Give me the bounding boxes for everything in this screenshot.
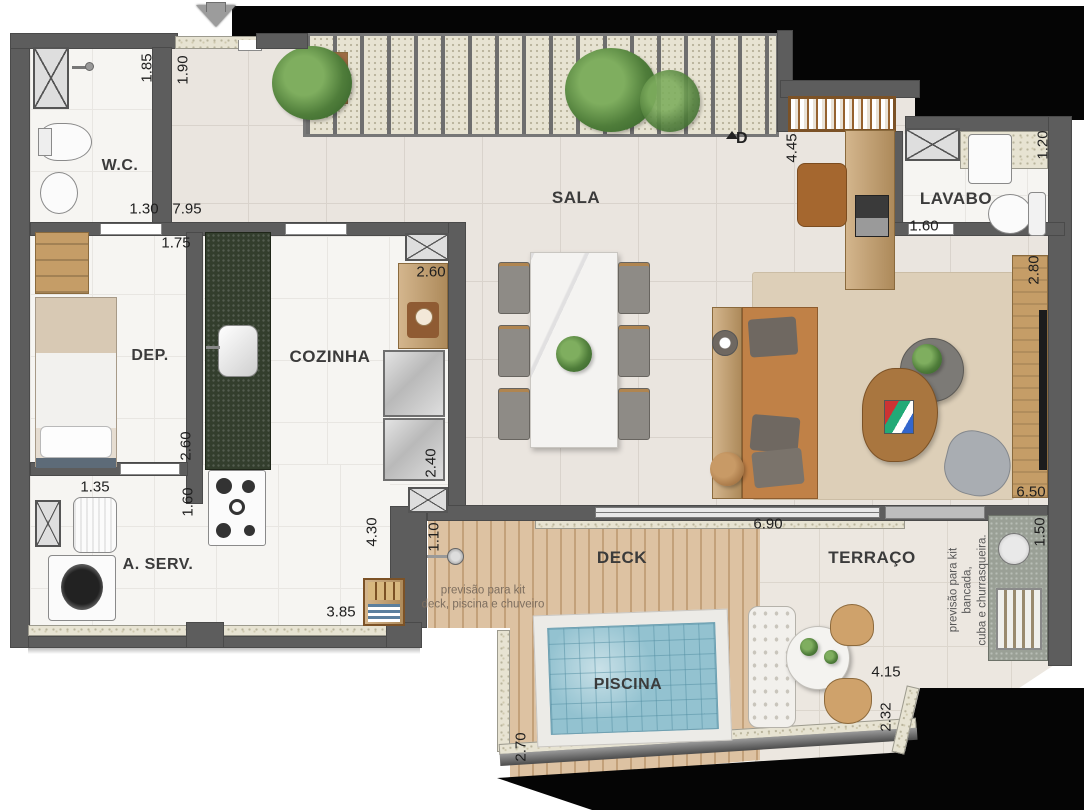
wall-service-bottom xyxy=(28,636,420,648)
shaft-wc xyxy=(33,47,69,109)
deck-shower-head xyxy=(447,548,464,565)
shaft-kitchen-top xyxy=(405,233,449,261)
laptop xyxy=(855,195,889,237)
mask-top-right-1 xyxy=(780,36,1084,84)
terraco-table-plant-1 xyxy=(800,638,818,656)
desk-chair xyxy=(797,163,847,227)
sofa xyxy=(742,307,818,499)
lavabo-door xyxy=(908,224,954,235)
wall-kitchen-right xyxy=(448,222,466,506)
stove xyxy=(208,470,266,546)
sala-window xyxy=(595,507,880,518)
washing-machine xyxy=(48,555,116,621)
dining-chair-3 xyxy=(498,388,530,440)
terrace-slider xyxy=(885,506,985,519)
wall-wc-right xyxy=(152,47,172,224)
side-table-top xyxy=(712,330,738,356)
deck-edge-left xyxy=(497,630,510,752)
kitchen-door xyxy=(285,224,347,235)
dep-wardrobe xyxy=(35,232,89,294)
cabinet-towels xyxy=(368,604,400,622)
service-pillar-1 xyxy=(186,622,224,648)
lavabo-sink xyxy=(968,134,1012,184)
coffee-table-plant xyxy=(912,344,942,374)
kitchen-sink xyxy=(218,325,258,377)
dep-hall-door xyxy=(100,224,162,235)
entry-arrow-stem xyxy=(206,2,226,12)
side-decor-bottom xyxy=(710,452,744,486)
dep-bed xyxy=(35,297,117,467)
terraco-chair-1 xyxy=(830,604,874,646)
pergola-plant-left xyxy=(272,46,352,120)
coffee-table-book xyxy=(884,400,914,434)
bed-blanket xyxy=(36,298,116,353)
bookshelf xyxy=(788,96,896,132)
tv xyxy=(1039,310,1047,470)
dining-chair-2 xyxy=(498,325,530,377)
washer-door xyxy=(61,564,103,610)
burner-5 xyxy=(244,525,255,536)
shaft-kitchen-bottom xyxy=(408,487,448,513)
burner-3 xyxy=(229,499,245,515)
wall-top-mid xyxy=(256,33,308,49)
deck-cabinet xyxy=(363,578,405,626)
lavabo-toilet-tank xyxy=(1028,192,1046,236)
fridge-upper xyxy=(383,350,445,417)
pergola-plant-right2 xyxy=(640,70,700,132)
pergola-strip xyxy=(303,33,779,137)
terraco-chair-2 xyxy=(824,678,872,724)
wc-sink xyxy=(40,172,78,214)
dining-chair-4 xyxy=(618,262,650,314)
counter-bowl xyxy=(415,308,433,326)
kitchen-counter-wood xyxy=(398,263,448,349)
sofa-cushion-1 xyxy=(748,316,799,357)
cabinet-doors xyxy=(368,582,400,600)
sofa-cushion-3 xyxy=(751,447,804,488)
laundry-tank xyxy=(73,497,117,553)
wc-toilet-tank xyxy=(38,128,52,156)
lavabo-toilet xyxy=(988,194,1032,234)
wall-dep-right xyxy=(186,232,203,504)
dining-chair-6 xyxy=(618,388,650,440)
dep-door xyxy=(120,464,180,475)
pool xyxy=(533,609,732,748)
outdoor-sink xyxy=(998,533,1030,565)
burner-4 xyxy=(216,523,231,538)
dining-chair-1 xyxy=(498,262,530,314)
shaft-aserv xyxy=(35,500,61,547)
dining-chair-5 xyxy=(618,325,650,377)
kitchen-faucet xyxy=(206,346,220,349)
floor-plan: D W.C.SALALAVABODEP.COZINHAA. SERV.DECKT… xyxy=(0,0,1084,810)
bed-base xyxy=(36,458,116,468)
fridge-lower xyxy=(383,418,445,481)
shaft-lavabo xyxy=(905,128,960,161)
grill xyxy=(996,588,1042,650)
dining-centerpiece xyxy=(556,336,592,372)
mask-top-right-2 xyxy=(915,82,1084,120)
wall-outer-left xyxy=(10,33,30,648)
terraco-table-plant-2 xyxy=(824,650,838,664)
bed-duvet xyxy=(36,353,116,428)
bed-pillow xyxy=(40,426,112,458)
service-shadow xyxy=(28,648,420,654)
wc-shower-head xyxy=(85,62,94,71)
burner-2 xyxy=(242,480,255,493)
duplex-letter: D xyxy=(736,131,748,147)
pool-water xyxy=(547,622,719,735)
burner-1 xyxy=(216,478,232,494)
deck-top-sill xyxy=(535,520,905,529)
wall-outer-right xyxy=(1048,116,1072,666)
